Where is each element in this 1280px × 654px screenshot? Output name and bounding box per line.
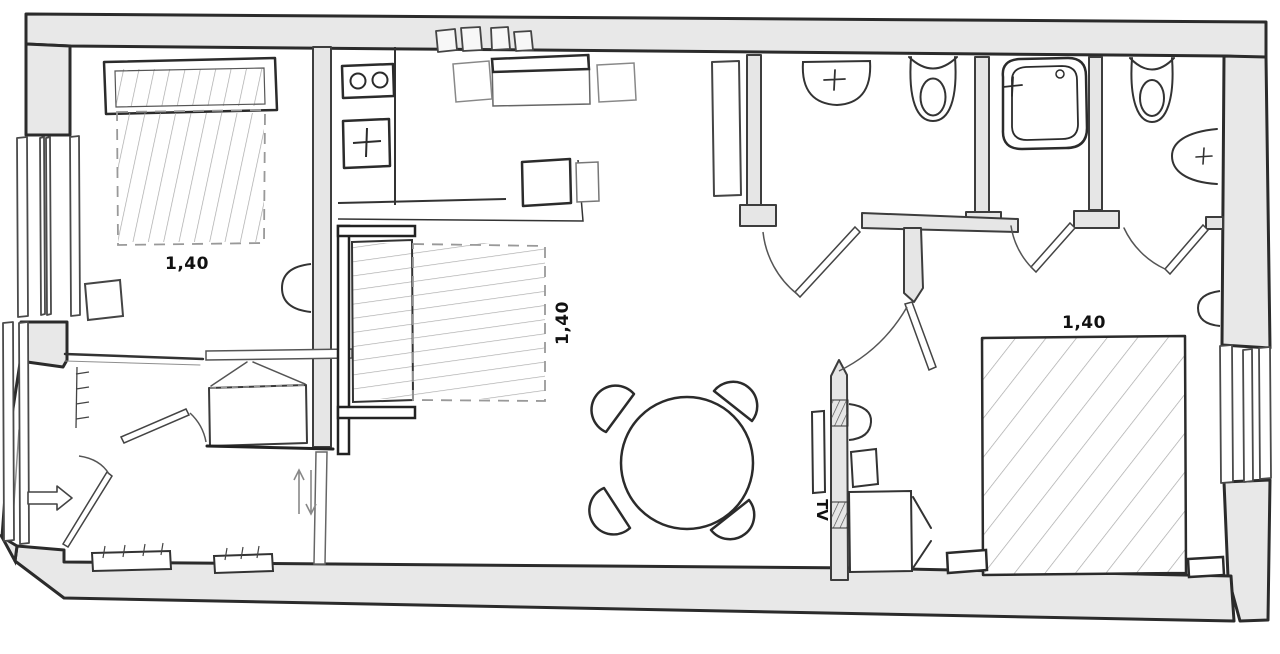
bed2-dimension-label: 1,40 [1062, 313, 1106, 333]
wc-room [1124, 58, 1217, 274]
door-panel [905, 302, 936, 370]
dining-table [621, 397, 753, 529]
kitchen [338, 27, 636, 221]
shower-room-door [1011, 223, 1075, 272]
window-left-upper [17, 136, 80, 317]
wall-radiator [76, 367, 89, 428]
kitchen-counter-edge [338, 199, 506, 203]
living-room: 1,40 TV [338, 226, 831, 539]
window-slat [1243, 349, 1253, 482]
entry-hall [28, 362, 333, 573]
window-right [1220, 345, 1271, 483]
tv-wall-hatch-top [831, 400, 848, 426]
slide-arrow-down-icon [306, 470, 316, 514]
partition-bath1-shower [975, 57, 989, 212]
door-panel [1031, 223, 1075, 272]
sofa-arm-top [338, 226, 415, 236]
door-arc [79, 456, 109, 474]
desk-chair-right [597, 63, 636, 102]
sliding-door [294, 452, 327, 564]
dining-chair-sw [589, 488, 630, 534]
washbasin-icon [1172, 129, 1217, 184]
window-slat [70, 136, 80, 316]
partition-hall-stub [904, 228, 923, 302]
tv-wall-hatch-bottom [831, 502, 848, 528]
door-arc [190, 413, 206, 442]
bed2-hatch [982, 336, 1186, 575]
partition-bath1-left [747, 55, 761, 205]
radiator-right [214, 546, 273, 573]
nightstand-left [947, 550, 987, 573]
washbasin-icon [803, 61, 870, 105]
bedroom1-sliding-panel [206, 349, 352, 360]
door-arc [1124, 228, 1165, 269]
room-bedroom-1: 1,40 [76, 58, 311, 428]
wall-lamp-icon [282, 264, 311, 312]
door-panel [1165, 225, 1208, 274]
window-slat [1259, 347, 1271, 479]
wall-line-thin [65, 361, 200, 365]
room-bedroom-2: 1,40 [849, 291, 1224, 577]
wall-line [65, 354, 203, 359]
sofa-hatch [353, 243, 545, 399]
kitchen-table [522, 159, 571, 206]
stool [851, 449, 878, 487]
wall-top [26, 14, 1266, 58]
bathroom-1 [803, 57, 957, 121]
kitchen-sink-icon [343, 119, 390, 168]
slide-arrow-up-icon [294, 470, 304, 514]
wardrobe-open-doors [211, 362, 305, 386]
partition-tv-wall [831, 360, 848, 580]
window-slat [3, 322, 14, 541]
desk-chair-left [453, 61, 492, 102]
wall-lamp-icon [849, 404, 871, 440]
bedroom2-door [839, 302, 936, 371]
window-slat [1220, 345, 1233, 483]
partition-shower-wc [1089, 57, 1102, 210]
stove-icon [342, 64, 394, 98]
partition-bath1-left-foot [740, 205, 776, 226]
bedroom1-bottom-wall [65, 349, 352, 365]
entrance-arrow-icon [28, 486, 72, 510]
door-arc [763, 232, 797, 294]
desk [492, 55, 590, 106]
door-arc [839, 307, 907, 371]
partition-bedroom1-right [313, 47, 331, 447]
side-table [85, 280, 123, 320]
wall-right-upper [1222, 56, 1270, 348]
window-slat [17, 137, 28, 317]
toilet-icon [909, 57, 957, 121]
wall-lamp-icon [1198, 291, 1220, 326]
bed1-headboard-hatch [116, 69, 264, 106]
shower-room [1003, 58, 1087, 272]
tv-icon [812, 411, 825, 493]
desk-with-chair [849, 491, 931, 572]
sliding-door-panel [314, 452, 327, 564]
window-slat [40, 137, 45, 315]
window-slat [46, 137, 51, 315]
bed1-mattress-hatch [118, 113, 264, 242]
window-slat [19, 322, 29, 544]
sofa-back [338, 226, 349, 454]
dining-chair-nw [591, 386, 634, 432]
tall-cabinet [712, 61, 741, 196]
sofa-dimension-label: 1,40 [553, 301, 573, 345]
sofa-arm-bottom [338, 407, 415, 418]
door-panel [63, 472, 112, 547]
floor-plan-page: 1,40 [0, 0, 1280, 654]
kitchen-chair [576, 162, 599, 202]
toilet-icon [1130, 58, 1174, 122]
tv-label: TV [813, 499, 831, 521]
partition-wc-door-stub [1206, 217, 1223, 229]
wc-door [1124, 225, 1208, 274]
nightstand-right [1188, 557, 1224, 577]
door-panel [121, 409, 189, 443]
floor-plan-canvas: 1,40 [0, 0, 1280, 654]
door-panel [795, 227, 860, 297]
window-left-lower [3, 322, 29, 544]
wardrobe [209, 385, 307, 446]
radiator-left [92, 543, 171, 571]
sofa-bed: 1,40 [338, 226, 573, 454]
entry-door [63, 456, 112, 547]
partition-shower-wc-foot [1074, 211, 1119, 228]
wall-left-upper [26, 44, 70, 135]
bedroom1-door [121, 409, 206, 443]
bathroom1-door [763, 227, 860, 297]
bed1-dimension-label: 1,40 [165, 254, 209, 274]
